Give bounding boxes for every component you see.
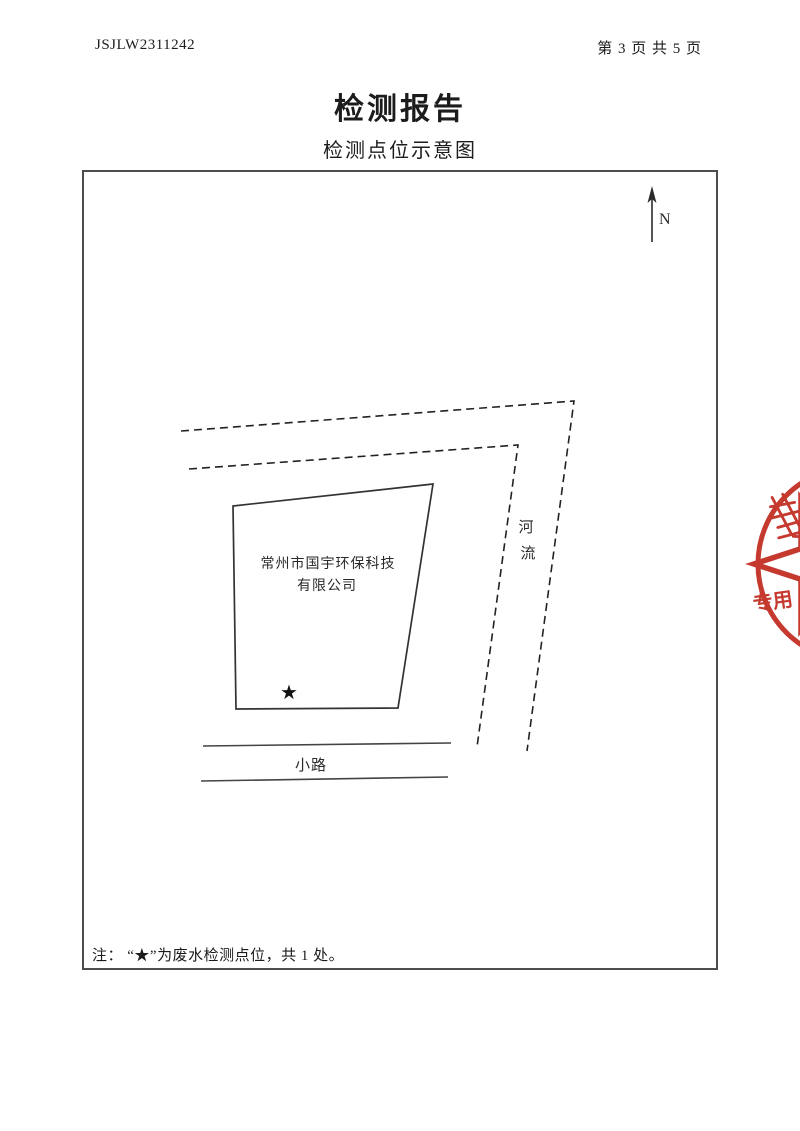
page-title: 检测报告 bbox=[0, 84, 800, 128]
site-map: N 河 流 常州市国宇环保科技 有限公司 ★ 小路 bbox=[84, 172, 716, 968]
north-arrow-icon bbox=[648, 186, 657, 242]
report-number: JSJLW2311242 bbox=[95, 37, 195, 54]
diagram-border-box: N 河 流 常州市国宇环保科技 有限公司 ★ 小路 bbox=[82, 170, 718, 970]
red-seal-stamp: 专用 bbox=[745, 470, 800, 670]
north-label: N bbox=[659, 211, 671, 228]
company-name-line1: 常州市国宇环保科技 bbox=[261, 555, 396, 572]
seal-visible-text: 专用 bbox=[751, 587, 794, 616]
road-line-bottom bbox=[201, 777, 448, 781]
report-page: JSJLW2311242 第 3 页 共 5 页 检测报告 检测点位示意图 N … bbox=[0, 0, 800, 1131]
river-label-char-1: 河 bbox=[518, 519, 533, 536]
note-text: 注： “★”为废水检测点位，共 1 处。 bbox=[92, 944, 344, 965]
road-label: 小路 bbox=[295, 757, 327, 774]
sampling-point-star: ★ bbox=[280, 682, 298, 704]
river-label-char-2: 流 bbox=[520, 545, 535, 562]
factory-boundary bbox=[233, 484, 433, 709]
road-line-top bbox=[203, 743, 451, 746]
page-number: 第 3 页 共 5 页 bbox=[597, 37, 702, 58]
company-name-line2: 有限公司 bbox=[297, 578, 357, 594]
diagram-subtitle: 检测点位示意图 bbox=[0, 134, 800, 163]
